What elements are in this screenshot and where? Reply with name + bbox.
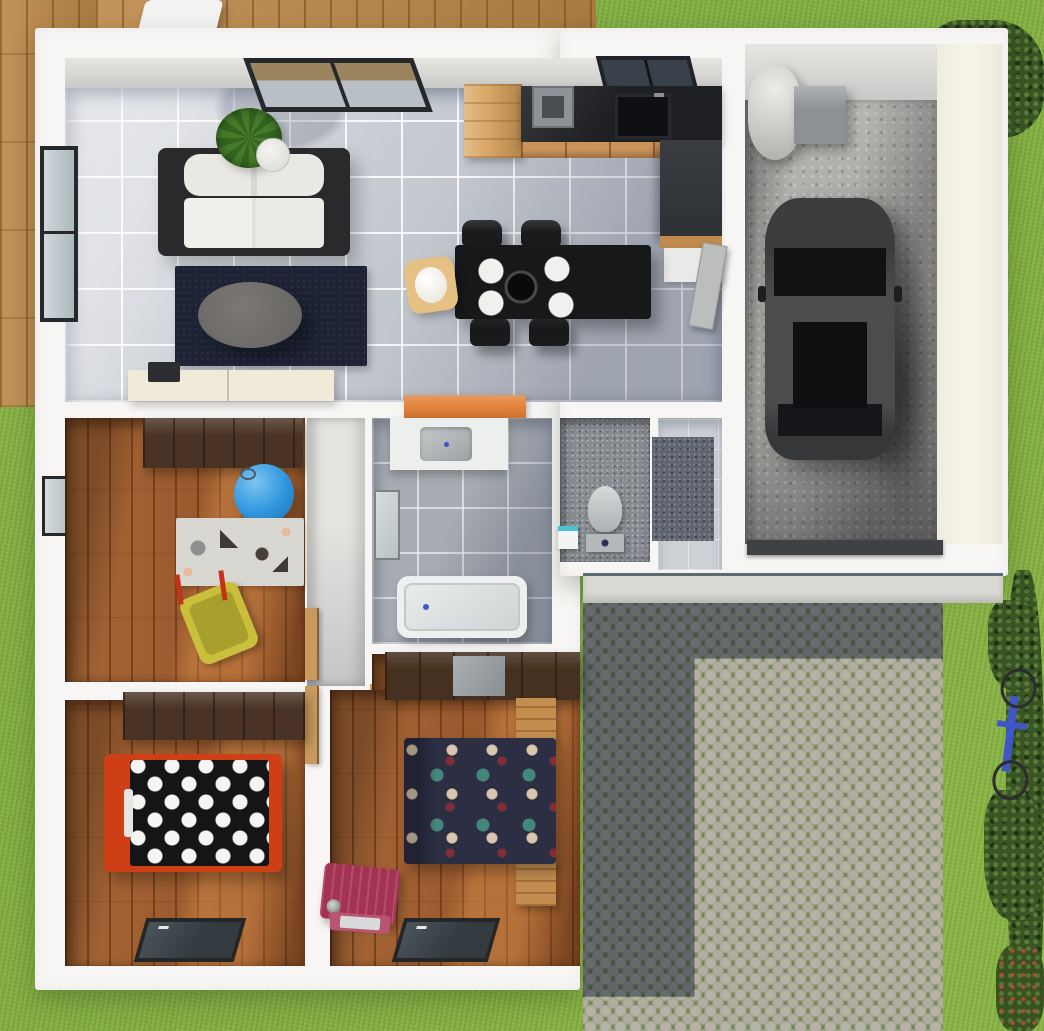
play-ball [234, 464, 294, 524]
kitchen-sink [615, 94, 671, 139]
utility-box [794, 86, 846, 144]
sideboard-item [148, 362, 180, 382]
flower-bed-corner [996, 945, 1044, 1031]
tall-cabinet [660, 140, 722, 238]
bush-blob-lower [984, 790, 1042, 920]
animal-print-rug [176, 518, 304, 586]
car [765, 198, 895, 460]
front-walkway [583, 573, 1003, 603]
double-bed [404, 738, 556, 864]
coffee-table [198, 282, 302, 348]
bedroom-double-wardrobe [385, 652, 580, 700]
floorplan-render [0, 0, 1044, 1031]
vanity-sink [390, 418, 508, 470]
range-hood [532, 86, 574, 128]
bathtub [397, 576, 527, 638]
bathroom-mirror [374, 490, 400, 560]
toilet [584, 486, 628, 552]
single-bed [104, 754, 282, 872]
bedroom-single-wardrobe [123, 692, 305, 740]
wc-bin [558, 526, 578, 549]
kitchen-wood-cabinet [464, 84, 522, 158]
dining-table [455, 245, 651, 319]
dining-chair-2 [521, 220, 561, 247]
dining-chair-4 [529, 317, 569, 346]
garage-door-threshold [747, 540, 943, 555]
dining-chair-1 [462, 220, 502, 247]
garage-wall-right [937, 44, 1003, 544]
dining-chair-3 [470, 317, 510, 346]
door-nursery [305, 608, 319, 680]
orange-doormat [404, 395, 526, 420]
living-window-left [40, 146, 78, 322]
potted-plant [216, 108, 282, 168]
baby-high-chair [402, 255, 459, 315]
nursery-wardrobe [143, 418, 303, 468]
door-bedroom-single [305, 686, 319, 764]
bedroom-single-window [134, 918, 247, 962]
entry-mat [652, 437, 714, 541]
bedroom-double-window [392, 918, 501, 962]
nightstand-bottom [516, 860, 556, 906]
living-window-top [243, 58, 433, 112]
